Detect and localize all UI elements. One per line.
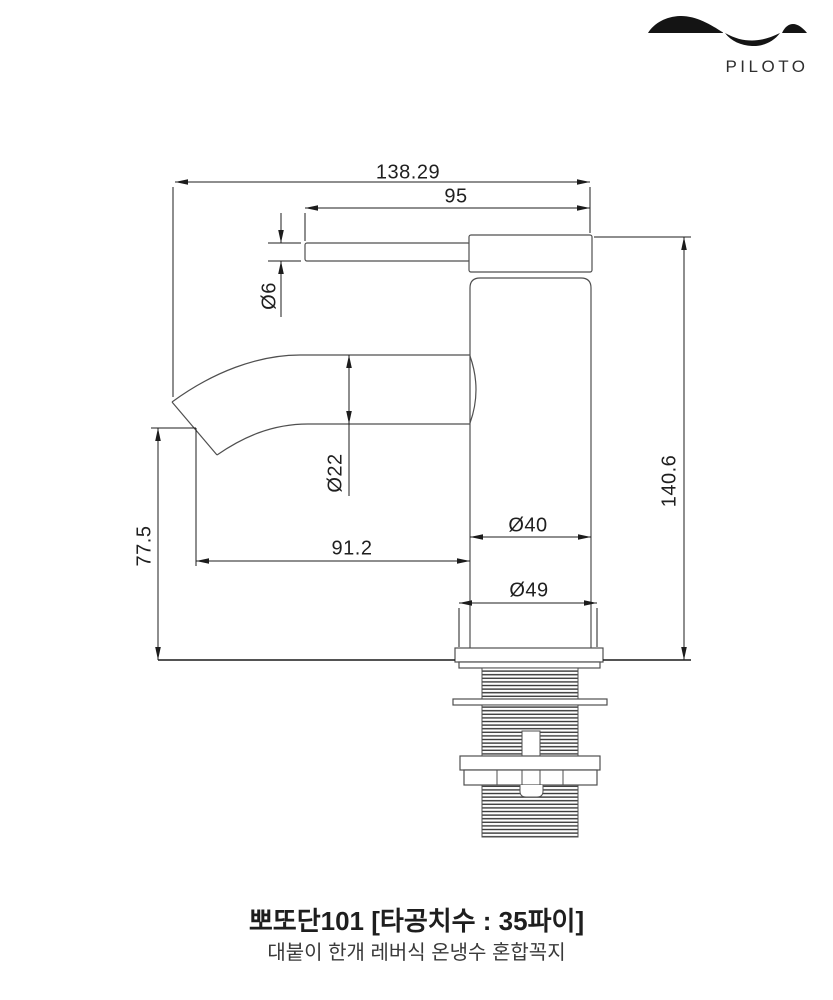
shank-slot <box>522 731 540 756</box>
spout-bottom-edge <box>217 424 470 455</box>
dim-label-handle-span: 95 <box>444 186 467 209</box>
product-caption: 뽀또단101 [타공치수 : 35파이] 대붙이 한개 레버식 온냉수 혼합꼭지 <box>0 903 833 967</box>
dim-label-body-dia: Ø40 <box>508 515 547 538</box>
lever-handle <box>305 243 470 261</box>
spout-top-edge <box>172 355 470 402</box>
base-flange-lip <box>459 662 600 668</box>
mounting-nut-flange <box>460 756 600 770</box>
dim-label-base-dia: Ø49 <box>509 580 548 603</box>
base-flange <box>455 648 603 662</box>
dim-label-spout-reach: 91.2 <box>332 538 373 561</box>
dim-label-overall-height: 140.6 <box>659 455 682 508</box>
ext-ticks-lever <box>268 243 301 261</box>
shank-threads-upper <box>482 668 578 699</box>
dim-label-spout-dia: Ø22 <box>325 453 348 492</box>
faucet-technical-drawing <box>0 0 833 1000</box>
dim-label-overall-length: 138.29 <box>376 162 440 185</box>
product-subtitle: 대붙이 한개 레버식 온냉수 혼합꼭지 <box>0 939 833 967</box>
faucet-spec-sheet: PILOTO <box>0 0 833 1000</box>
dim-label-outlet-height: 77.5 <box>134 526 157 567</box>
product-title: 뽀또단101 [타공치수 : 35파이] <box>0 903 833 939</box>
cartridge-cap <box>469 235 592 272</box>
mounting-washer <box>453 699 607 705</box>
dim-label-lever-dia: Ø6 <box>259 282 282 310</box>
shank-notch <box>520 785 543 797</box>
mounting-nut-hex <box>464 770 597 785</box>
